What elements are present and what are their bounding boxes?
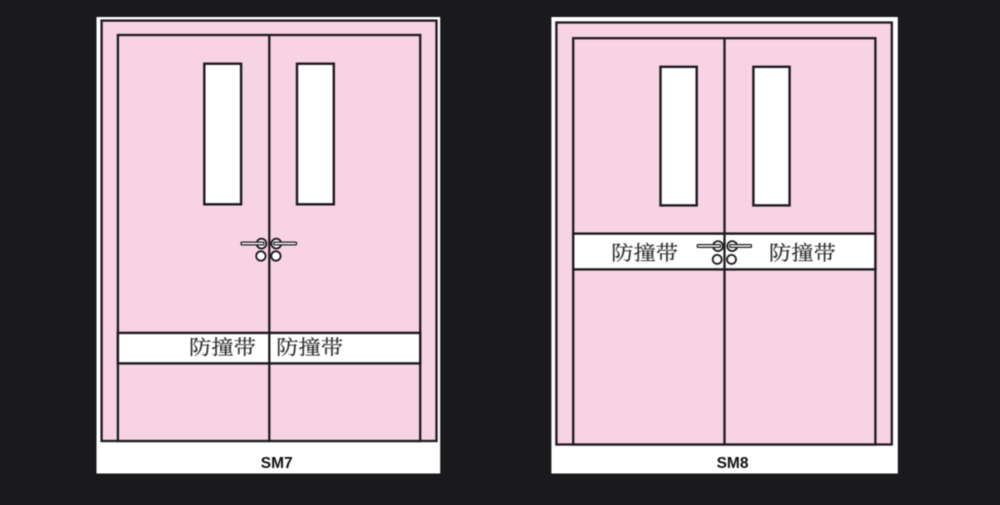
svg-text:SM7: SM7 bbox=[261, 455, 293, 472]
svg-text:SM8: SM8 bbox=[717, 455, 749, 472]
